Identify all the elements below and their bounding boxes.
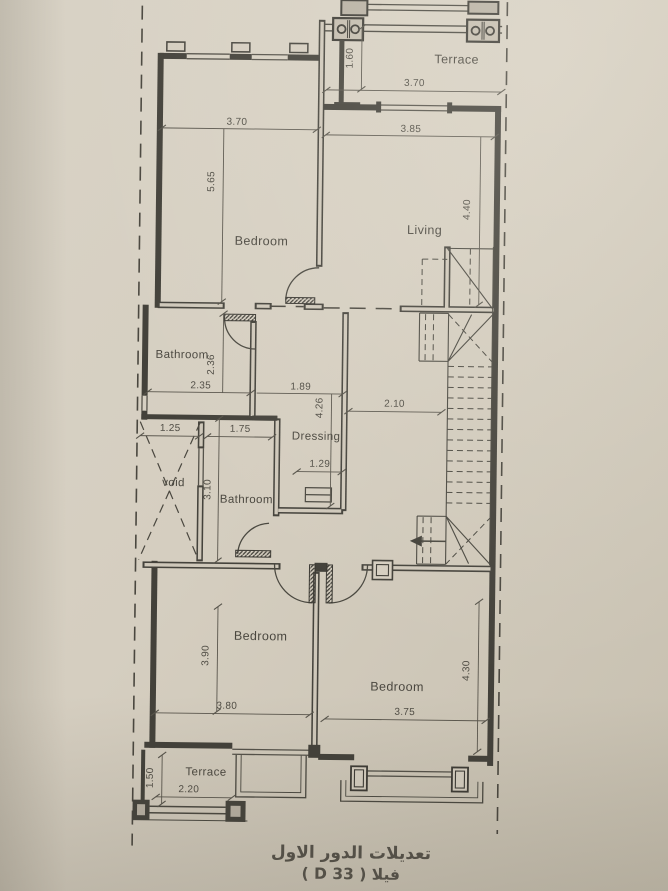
photo-highlight-topright (0, 0, 668, 891)
floor-plan-photo: 3.70 1.60 3.70 5.65 3.85 4.40 2.35 2.36 … (0, 0, 668, 891)
